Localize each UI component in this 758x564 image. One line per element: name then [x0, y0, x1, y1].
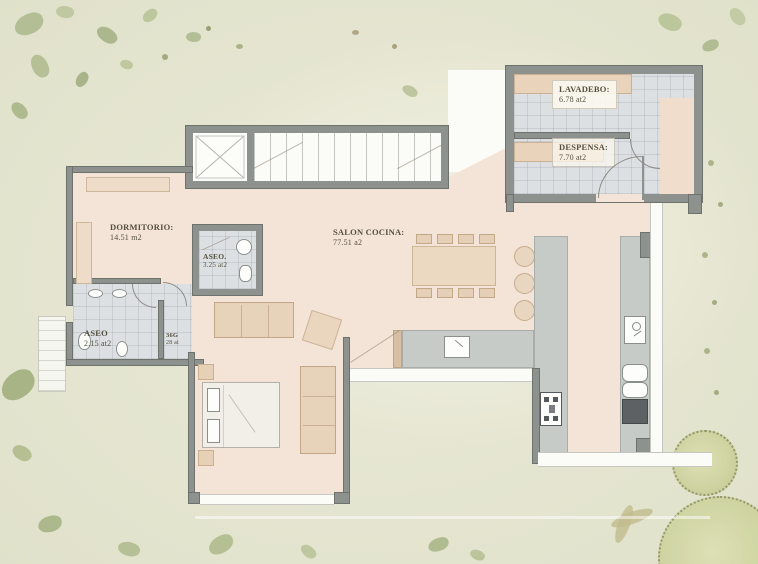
window-band [200, 494, 334, 505]
burner-icon [544, 397, 549, 402]
leaf-decoration [701, 38, 720, 53]
wall [66, 166, 193, 173]
pillow [207, 388, 220, 412]
room-area: 6.78 at2 [559, 95, 610, 105]
leaf-decoration [94, 23, 120, 48]
seed-decoration [392, 44, 397, 49]
nightstand [198, 450, 214, 466]
room-label-lavadero: LAVADEBO: 6.78 at2 [552, 80, 617, 109]
seed-decoration [718, 202, 723, 207]
room-area: 14.51 m2 [110, 233, 173, 243]
dining-chair [416, 234, 432, 244]
burner-icon [544, 416, 549, 421]
dining-chair [416, 288, 432, 298]
wall [532, 368, 540, 464]
washbasin [236, 239, 252, 255]
sofa-cushion-divider [268, 305, 269, 337]
leaf-decoration [116, 539, 141, 560]
sofa-cushion-divider [303, 425, 335, 426]
bathroom-sink [112, 289, 127, 298]
room-label-dormitorio: DORMITORIO: 14.51 m2 [110, 222, 173, 243]
room-area: 7.70 at2 [559, 153, 608, 163]
leaf-decoration [727, 5, 748, 28]
dresser [76, 222, 92, 284]
toilet [239, 265, 252, 282]
seed-decoration [236, 44, 243, 49]
room-name: DORMITORIO: [110, 222, 173, 233]
leaf-decoration [185, 31, 202, 43]
room-area: 2.15 at2 [84, 339, 111, 349]
faucet-icon [632, 322, 641, 331]
wall [188, 352, 195, 504]
room-area: 77.51 a2 [333, 238, 404, 248]
door-leaf [642, 156, 644, 200]
wall [188, 492, 200, 504]
sofa-cushion-divider [241, 305, 242, 337]
leaf-decoration [299, 542, 319, 562]
room-label-despensa: DESPENSA: 7.70 at2 [552, 138, 615, 167]
shower-screen [202, 237, 230, 251]
wall [66, 359, 204, 366]
room-label-aseo-interior: ASEO. 3.25 at2 [203, 252, 227, 270]
room-name: SALON COCINA: [333, 227, 404, 238]
leaf-decoration [140, 7, 159, 25]
seed-decoration [708, 160, 714, 166]
dining-chair [479, 234, 495, 244]
control-strip [549, 405, 555, 413]
burner-icon [553, 416, 558, 421]
wall [334, 492, 350, 504]
leaf-decoration [427, 536, 451, 554]
leaf-decoration [55, 4, 75, 20]
seed-decoration [712, 300, 717, 305]
dining-chair [437, 234, 453, 244]
room-area: 28 at [166, 340, 179, 348]
seed-decoration [704, 348, 710, 354]
wall [66, 166, 73, 306]
leaf-decoration [37, 514, 63, 534]
sink [624, 316, 646, 344]
elevator [193, 133, 254, 181]
dining-chair [458, 234, 474, 244]
window-band [350, 368, 536, 382]
stair-diagonal [253, 142, 303, 169]
wall [688, 194, 702, 214]
terrace-line [195, 516, 710, 519]
leaf-decoration [73, 70, 92, 89]
floor-plan-canvas: ASEO 2.15 at2 36G 28 at DORMITORIO: 14.5… [0, 0, 758, 564]
utility-corridor [660, 98, 694, 194]
oven [622, 399, 648, 424]
faucet-icon [634, 331, 642, 337]
room-label-aseo-entrada: ASEO 2.15 at2 [84, 328, 111, 349]
double-sink [622, 382, 648, 398]
room-name: ASEO. [203, 252, 227, 261]
duvet-fold [228, 394, 255, 432]
leaf-decoration [0, 365, 40, 406]
entry-stairs [38, 316, 66, 392]
leaf-decoration [119, 58, 135, 72]
faucet-icon [455, 340, 463, 347]
leaf-decoration [656, 9, 685, 35]
leaf-decoration [9, 99, 31, 122]
stair-block [186, 126, 448, 188]
wardrobe [86, 177, 170, 192]
room-label-armario: 36G 28 at [166, 332, 179, 348]
window-band [650, 202, 663, 454]
bar-stool [514, 246, 535, 267]
room-label-salon: SALON COCINA: 77.51 a2 [333, 227, 404, 248]
cooktop-panel [540, 392, 562, 426]
toilet [116, 341, 128, 357]
seed-decoration [352, 30, 359, 35]
bar-stool [514, 273, 535, 294]
staircase [254, 133, 441, 181]
bush-decoration [658, 496, 758, 564]
room-name: ASEO [84, 328, 111, 339]
seed-decoration [714, 390, 719, 395]
double-sink [622, 364, 648, 382]
elevator-x-icon [193, 133, 247, 181]
seed-decoration [702, 252, 708, 258]
sink [444, 336, 470, 358]
counter-wood-divider [393, 330, 402, 368]
bar-stool [514, 300, 535, 321]
bathroom-sink [88, 289, 103, 298]
room-name: DESPENSA: [559, 142, 608, 153]
leaf-decoration [10, 441, 34, 465]
dining-chair [458, 288, 474, 298]
dining-table [412, 246, 496, 286]
seed-decoration [206, 26, 211, 31]
dining-chair [479, 288, 495, 298]
leaf-decoration [28, 52, 51, 80]
wall [343, 337, 350, 504]
bed [202, 382, 280, 448]
dining-chair [437, 288, 453, 298]
room-name: 36G [166, 332, 179, 340]
duvet-edge [223, 385, 224, 447]
sofa-vertical [300, 366, 336, 454]
leaf-decoration [206, 531, 237, 557]
room-area: 3.25 at2 [203, 261, 227, 270]
sofa-cushion-divider [303, 396, 335, 397]
seed-decoration [162, 54, 168, 60]
pillow [207, 419, 220, 443]
burner-icon [553, 397, 558, 402]
nightstand [198, 364, 214, 380]
leaf-decoration [469, 547, 487, 563]
wall [506, 194, 514, 212]
leaf-decoration [11, 9, 46, 38]
window-band [538, 452, 712, 467]
stair-diagonal [397, 142, 447, 169]
room-name: LAVADEBO: [559, 84, 610, 95]
leaf-decoration [401, 82, 420, 99]
sofa-horizontal [214, 302, 294, 338]
